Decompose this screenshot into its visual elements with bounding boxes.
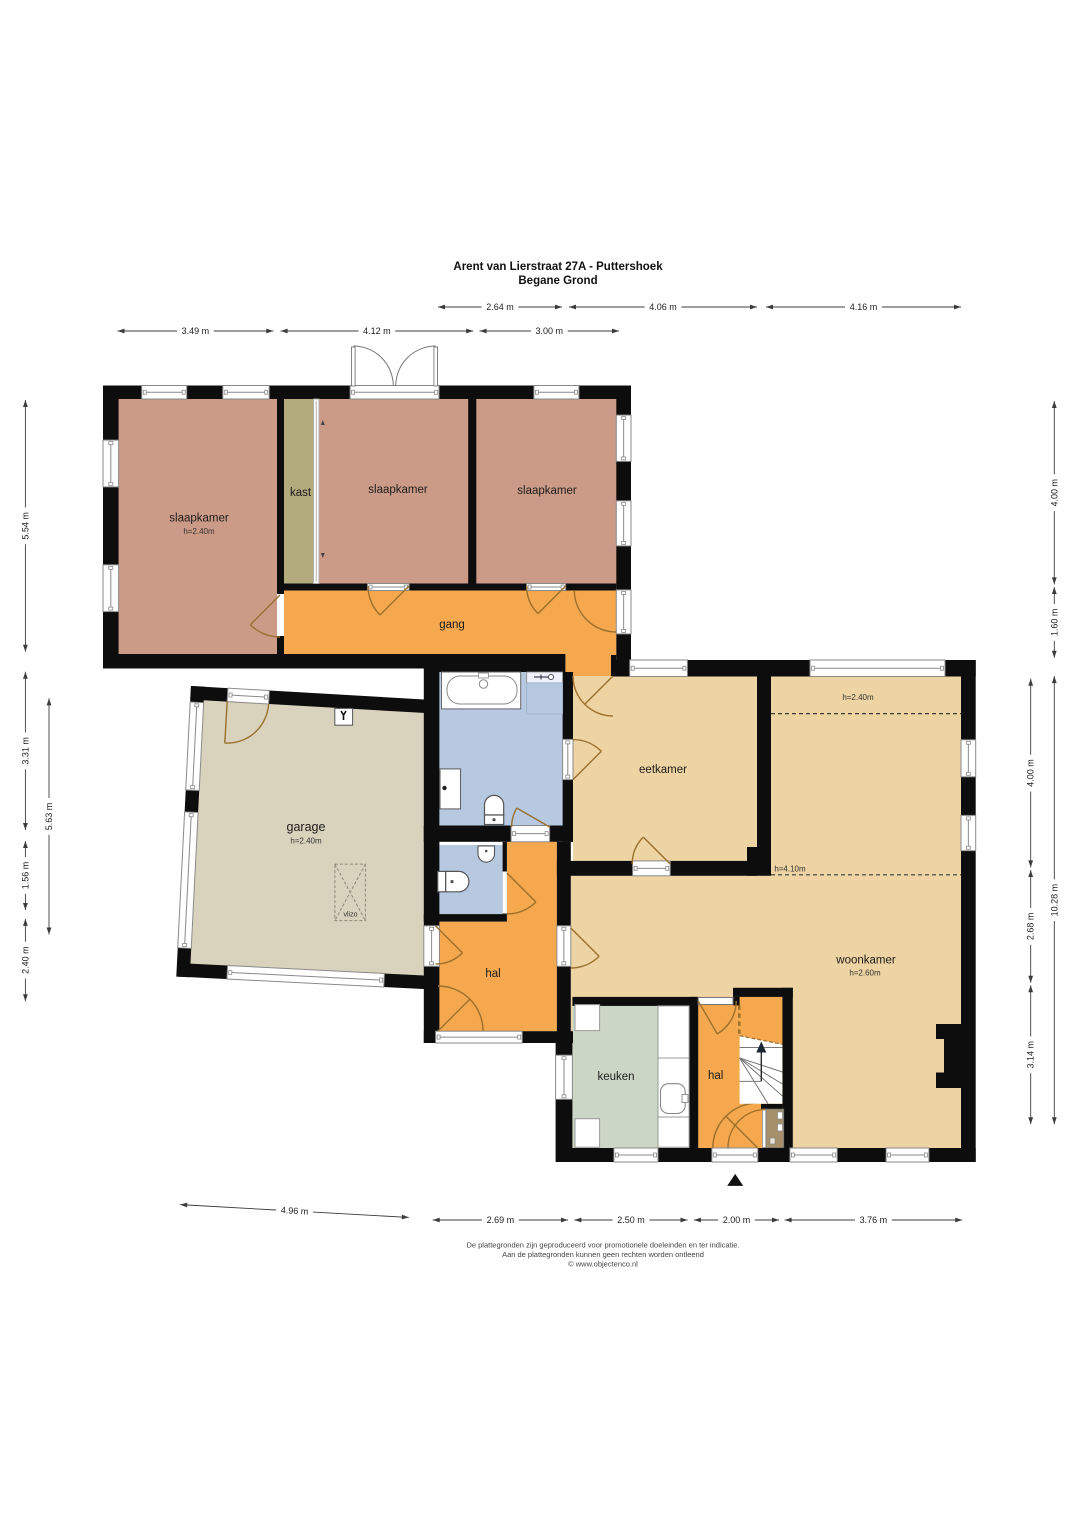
svg-text:4.00 m: 4.00 m bbox=[1049, 479, 1059, 507]
svg-text:1.60 m: 1.60 m bbox=[1049, 609, 1059, 637]
svg-text:h=2.60m: h=2.60m bbox=[849, 969, 881, 978]
svg-text:3.49 m: 3.49 m bbox=[182, 326, 210, 336]
svg-text:keuken: keuken bbox=[597, 1071, 634, 1083]
svg-text:4.00 m: 4.00 m bbox=[1026, 759, 1036, 787]
svg-text:h=2.40m: h=2.40m bbox=[842, 693, 874, 702]
svg-text:garage: garage bbox=[287, 820, 326, 834]
svg-text:slaapkamer: slaapkamer bbox=[169, 513, 229, 525]
svg-text:3.31 m: 3.31 m bbox=[20, 737, 30, 765]
svg-text:2.69 m: 2.69 m bbox=[487, 1215, 515, 1225]
svg-text:4.96 m: 4.96 m bbox=[280, 1205, 308, 1217]
svg-text:hal: hal bbox=[485, 968, 500, 980]
svg-text:3.76 m: 3.76 m bbox=[860, 1215, 888, 1225]
svg-text:kast: kast bbox=[290, 487, 312, 499]
svg-text:5.54 m: 5.54 m bbox=[20, 512, 30, 540]
svg-text:eetkamer: eetkamer bbox=[639, 764, 687, 776]
svg-text:2.68 m: 2.68 m bbox=[1026, 913, 1036, 941]
svg-text:1.56 m: 1.56 m bbox=[20, 862, 30, 890]
svg-text:5.63 m: 5.63 m bbox=[44, 803, 54, 831]
svg-text:2.40 m: 2.40 m bbox=[20, 946, 30, 974]
svg-text:2.00 m: 2.00 m bbox=[723, 1215, 751, 1225]
svg-text:slaapkamer: slaapkamer bbox=[517, 485, 577, 497]
svg-text:h=2.40m: h=2.40m bbox=[183, 527, 215, 536]
svg-text:10.28 m: 10.28 m bbox=[1049, 884, 1059, 917]
svg-text:3.14 m: 3.14 m bbox=[1026, 1041, 1036, 1069]
svg-text:4.12 m: 4.12 m bbox=[363, 326, 391, 336]
svg-text:Begane Grond: Begane Grond bbox=[518, 275, 597, 287]
svg-text:hal: hal bbox=[708, 1070, 723, 1082]
svg-text:woonkamer: woonkamer bbox=[835, 955, 896, 967]
svg-text:h=2.40m: h=2.40m bbox=[290, 837, 322, 846]
svg-text:2.64 m: 2.64 m bbox=[486, 302, 514, 312]
svg-text:Aan de plattegronden kunnen ge: Aan de plattegronden kunnen geen rechten… bbox=[502, 1250, 704, 1259]
svg-text:2.50 m: 2.50 m bbox=[617, 1215, 645, 1225]
svg-text:Arent van Lierstraat 27A - Put: Arent van Lierstraat 27A - Puttershoek bbox=[453, 261, 663, 273]
svg-text:4.06 m: 4.06 m bbox=[649, 302, 677, 312]
svg-text:© www.objectenco.nl: © www.objectenco.nl bbox=[568, 1260, 638, 1269]
svg-text:slaapkamer: slaapkamer bbox=[368, 484, 428, 496]
svg-text:3.00 m: 3.00 m bbox=[536, 326, 564, 336]
svg-text:h=4.10m: h=4.10m bbox=[774, 865, 806, 874]
svg-text:gang: gang bbox=[439, 619, 465, 631]
svg-text:4.16 m: 4.16 m bbox=[850, 302, 878, 312]
svg-text:De plattegronden zijn geproduc: De plattegronden zijn geproduceerd voor … bbox=[466, 1241, 739, 1250]
svg-text:vlizo: vlizo bbox=[343, 912, 357, 919]
